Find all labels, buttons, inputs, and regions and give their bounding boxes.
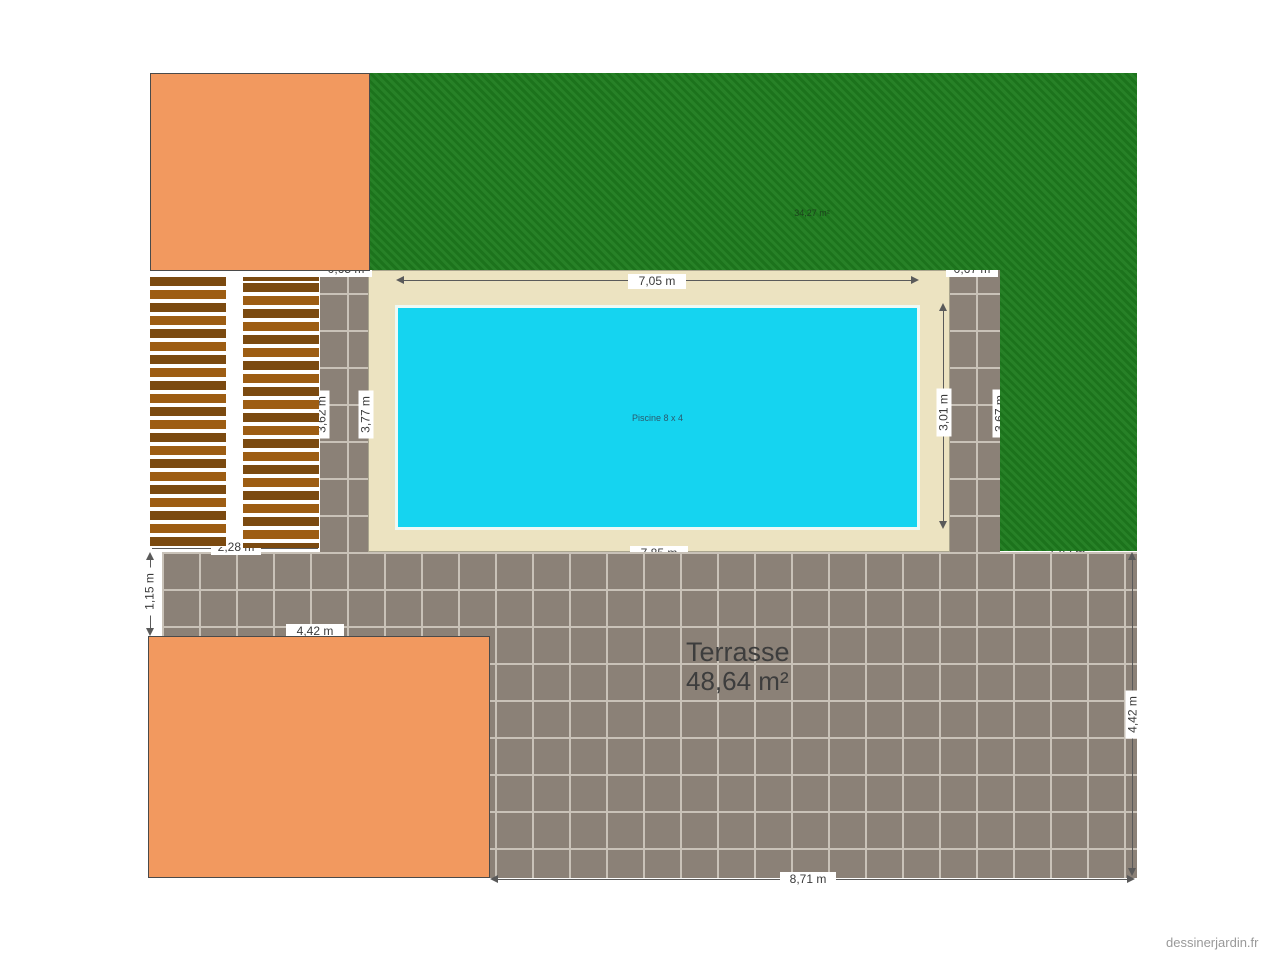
terrace-area-label: 48,64 m² bbox=[686, 667, 790, 695]
wood-deck-column-right[interactable] bbox=[243, 277, 319, 548]
dimension-arrow-icon bbox=[396, 276, 404, 284]
dimension-arrow-icon bbox=[146, 552, 154, 560]
dim-terrace-right-height: 4,42 m bbox=[1126, 691, 1141, 739]
dimension-arrow-icon bbox=[1128, 868, 1136, 876]
dimension-arrow-icon bbox=[911, 276, 919, 284]
lawn-top[interactable] bbox=[370, 73, 1137, 270]
dim-pool-width: 7,05 m bbox=[628, 274, 686, 289]
wood-deck-column-left[interactable] bbox=[150, 277, 226, 547]
garden-plan-canvas: Piscine 8 x 4 3,67 m 3,62 m 0,65 m 0,67 … bbox=[0, 0, 1280, 960]
dimension-arrow-icon bbox=[1127, 875, 1135, 883]
terrace-name-label: Terrasse bbox=[686, 638, 790, 667]
lawn-right-column[interactable] bbox=[1000, 270, 1137, 551]
dim-pool-height: 3,01 m bbox=[937, 389, 952, 437]
lawn-area-label: 34,27 m² bbox=[770, 208, 854, 218]
dimension-arrow-icon bbox=[146, 628, 154, 636]
pool-label: Piscine 8 x 4 bbox=[632, 413, 683, 423]
swimming-pool[interactable]: Piscine 8 x 4 bbox=[395, 305, 920, 530]
dimension-arrow-icon bbox=[939, 521, 947, 529]
dim-left-strip-height: 3,77 m bbox=[359, 391, 374, 439]
dim-terrace-upper-height: 1,15 m bbox=[143, 568, 158, 616]
building-top-left[interactable] bbox=[150, 73, 370, 271]
dimension-arrow-icon bbox=[1128, 552, 1136, 560]
building-bottom-left[interactable] bbox=[148, 636, 490, 878]
dimension-arrow-icon bbox=[490, 875, 498, 883]
terrace-lower[interactable] bbox=[490, 638, 1137, 878]
dim-terrace-bottom-width: 8,71 m bbox=[780, 872, 836, 887]
dimension-arrow-icon bbox=[939, 303, 947, 311]
terrace-label: Terrasse 48,64 m² bbox=[686, 638, 790, 695]
watermark-site-name: dessinerjardin.fr bbox=[1166, 935, 1259, 950]
